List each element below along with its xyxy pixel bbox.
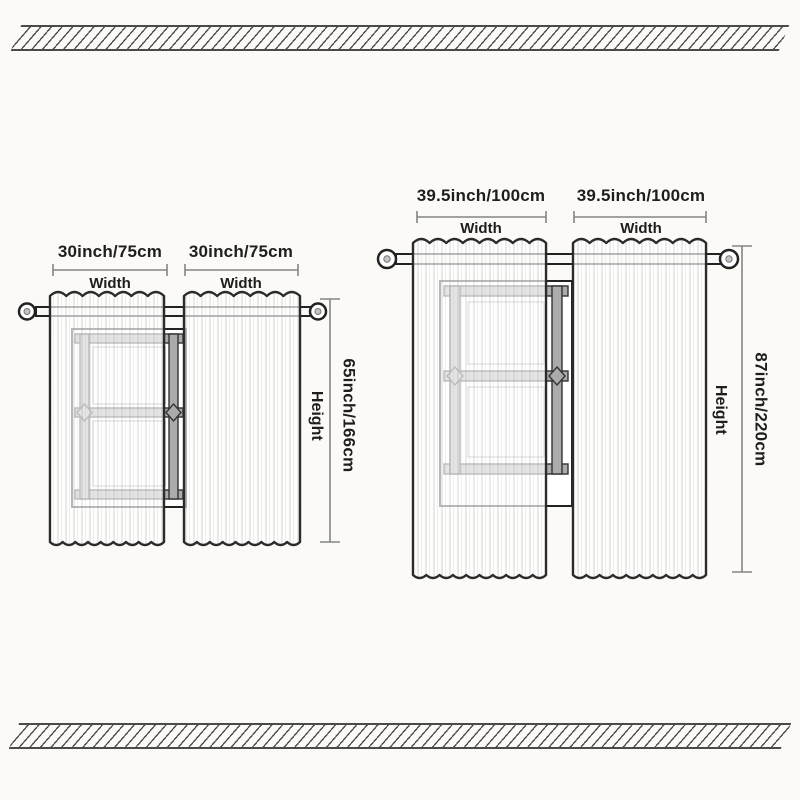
- small-height-value-label: 65inch/166cm: [339, 345, 358, 485]
- large-width-caption-left: Width: [431, 221, 531, 238]
- small-height-caption: Height: [307, 376, 325, 456]
- large-diagram: [378, 211, 752, 578]
- large-height-caption: Height: [711, 370, 729, 450]
- small-curtain-panel-left: [50, 292, 164, 545]
- large-height-dimension: [732, 246, 752, 572]
- small-panel2-width-label: 30inch/75cm: [171, 243, 311, 262]
- large-height-value-label: 87inch/220cm: [751, 334, 770, 484]
- small-curtain-panel-right: [184, 292, 300, 545]
- large-curtain-panel-left: [413, 239, 546, 578]
- curtain-size-diagram: 30inch/75cm 30inch/75cm Width Width 65in…: [0, 0, 800, 800]
- large-width-caption-right: Width: [591, 221, 691, 238]
- small-panel1-width-label: 30inch/75cm: [40, 243, 180, 262]
- large-curtain-panel-right: [573, 239, 706, 578]
- small-diagram: [19, 264, 340, 545]
- large-panel1-width-label: 39.5inch/100cm: [396, 187, 566, 206]
- small-width-caption-right: Width: [191, 276, 291, 293]
- diagram-canvas: [0, 0, 800, 800]
- small-width-caption-left: Width: [60, 276, 160, 293]
- large-panel2-width-label: 39.5inch/100cm: [556, 187, 726, 206]
